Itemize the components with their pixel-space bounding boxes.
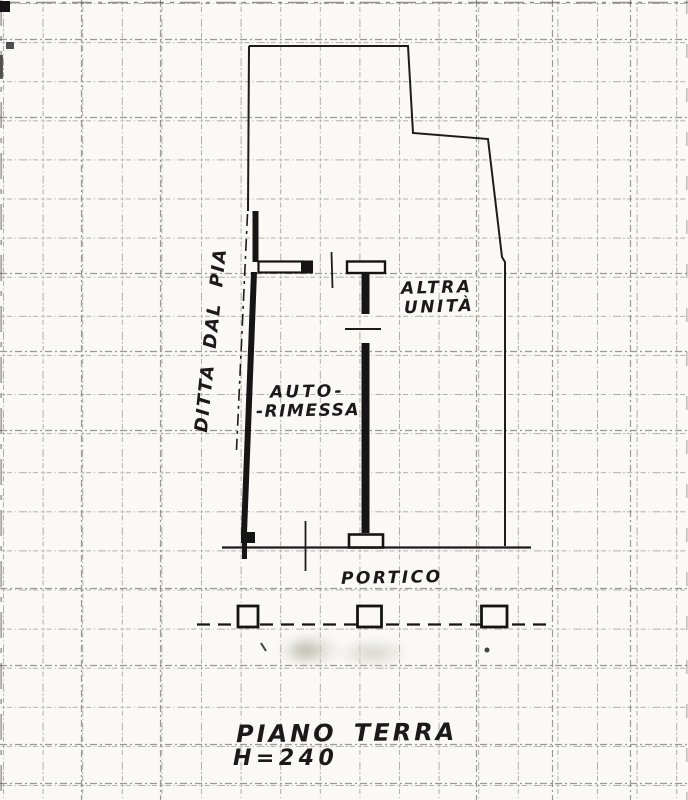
portico-pillar <box>358 606 382 627</box>
scan-blot-icon <box>6 42 14 49</box>
portico-pillar <box>238 606 258 627</box>
wall-left-foot-stub <box>242 543 247 559</box>
label-portico: PORTICO <box>341 569 443 589</box>
wall-left-foot <box>241 532 255 543</box>
building-outline-left <box>248 46 249 211</box>
label-autorimessa-line2: -RIMESSA <box>256 402 360 422</box>
scanned-floor-plan-page: DITTA DAL PIA ALTRA UNITÀ AUTO- -RIMESSA… <box>0 0 688 800</box>
wall-center-top-bar <box>347 262 385 274</box>
plan-title: PIANO TERRA <box>236 720 458 748</box>
pillar-filled <box>301 261 313 274</box>
wall-center-foot <box>349 535 383 548</box>
section-tick <box>332 252 333 288</box>
wall-center-upper <box>362 273 370 314</box>
wall-left-top-bar <box>259 262 303 273</box>
wall-left-upper-stem <box>253 211 259 262</box>
scan-blot-icon <box>0 1 10 12</box>
scan-blot-icon <box>0 55 3 79</box>
portico-pillar <box>482 606 508 627</box>
plan-height-note: H=240 <box>233 747 338 770</box>
label-altra-unita-line2: UNITÀ <box>404 298 475 318</box>
wall-center-lower <box>362 343 370 533</box>
scan-mark-icon <box>485 648 490 653</box>
